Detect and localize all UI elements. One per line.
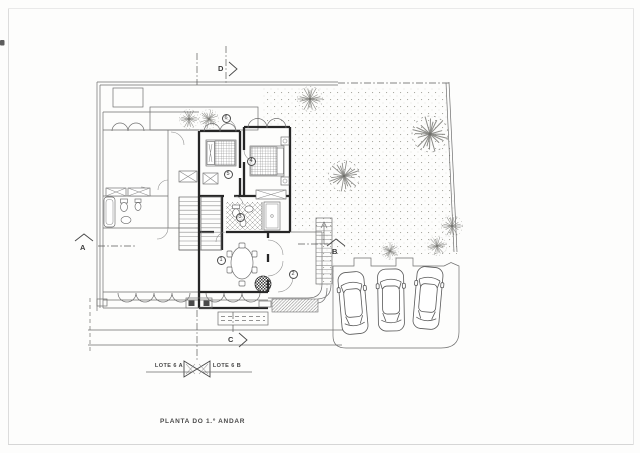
wardrobe-icon xyxy=(106,188,126,196)
scan-edge-right xyxy=(633,8,634,445)
fireplace-icon xyxy=(255,276,271,292)
car-icon xyxy=(411,266,445,330)
bathroom xyxy=(226,202,280,230)
room-number-5: 5 xyxy=(224,170,233,179)
entrance-ramp xyxy=(272,285,331,312)
floor-plan-drawing xyxy=(0,0,640,453)
left-unit-bathroom xyxy=(104,197,141,227)
dining-table-icon xyxy=(227,243,257,286)
left-unit-stairs xyxy=(179,197,199,250)
room-number-1: 1 xyxy=(217,256,226,265)
terrace xyxy=(268,232,322,298)
left-unit-wardrobes xyxy=(106,171,197,196)
scan-edge-top xyxy=(8,8,634,9)
scan-edge-left xyxy=(8,8,9,445)
bathtub-icon xyxy=(104,197,115,227)
sink-icon xyxy=(121,216,131,223)
section-d-chevron xyxy=(229,62,237,76)
room-number-3: 3 xyxy=(236,213,245,222)
scan-speck xyxy=(0,40,5,46)
lot-label-left: LOTE 6 A xyxy=(146,363,192,369)
wardrobe-icon xyxy=(179,171,197,182)
section-a-chevron xyxy=(75,234,93,241)
rear-terrace xyxy=(150,106,258,133)
planter-tree-icon xyxy=(196,106,223,133)
nightstand-icon xyxy=(281,177,289,185)
room-number-6: 6 xyxy=(222,114,231,123)
room-number-4: 4 xyxy=(247,157,256,166)
parked-cars xyxy=(336,266,445,335)
walkway-strip xyxy=(218,312,268,325)
section-marker-c: C xyxy=(228,335,234,344)
drawing-caption: PLANTA DO 1.º ANDAR xyxy=(160,418,245,425)
right-unit-stairs xyxy=(201,197,221,250)
floor-plan-page: A B C D 1 2 3 4 5 6 LOTE 6 A LOTE 6 B PL… xyxy=(0,0,640,453)
garden-stipple-area xyxy=(262,87,457,286)
front-pier xyxy=(259,301,271,307)
sink-icon xyxy=(245,206,253,212)
wardrobe-icon xyxy=(128,188,150,196)
section-marker-b: B xyxy=(332,247,338,256)
shower-icon xyxy=(264,202,280,230)
wardrobe-icon xyxy=(256,190,286,199)
bidet-icon xyxy=(135,199,141,211)
section-marker-a: A xyxy=(80,243,86,252)
toilet-icon xyxy=(121,199,128,212)
room-number-2: 2 xyxy=(289,270,298,279)
wardrobe-icon xyxy=(203,173,218,184)
lot-label-right: LOTE 6 B xyxy=(202,363,252,369)
car-icon xyxy=(376,269,406,332)
section-marker-d: D xyxy=(218,64,224,73)
scan-edge-bottom xyxy=(8,444,634,445)
bed-icon xyxy=(250,137,289,185)
nightstand-icon xyxy=(281,137,289,145)
bed-icon xyxy=(206,140,236,166)
planter-box xyxy=(113,88,143,107)
car-icon xyxy=(336,271,370,335)
